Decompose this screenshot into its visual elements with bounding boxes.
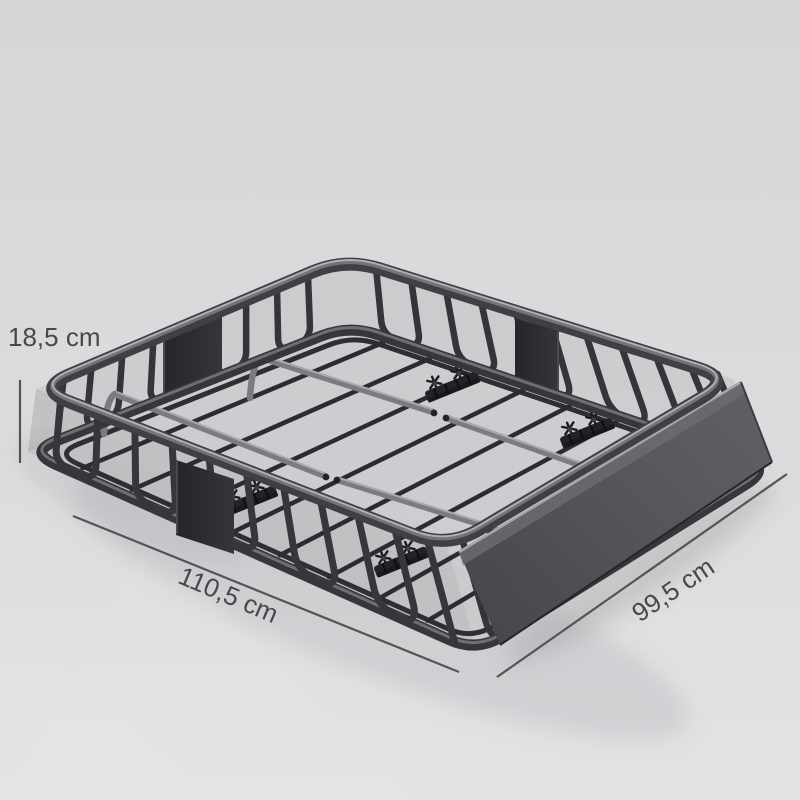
roof-basket-render: 18,5 cm 110,5 cm 99,5 cm	[0, 0, 800, 800]
product-image: 18,5 cm 110,5 cm 99,5 cm	[0, 0, 800, 800]
height-dimension-label: 18,5 cm	[8, 322, 101, 352]
